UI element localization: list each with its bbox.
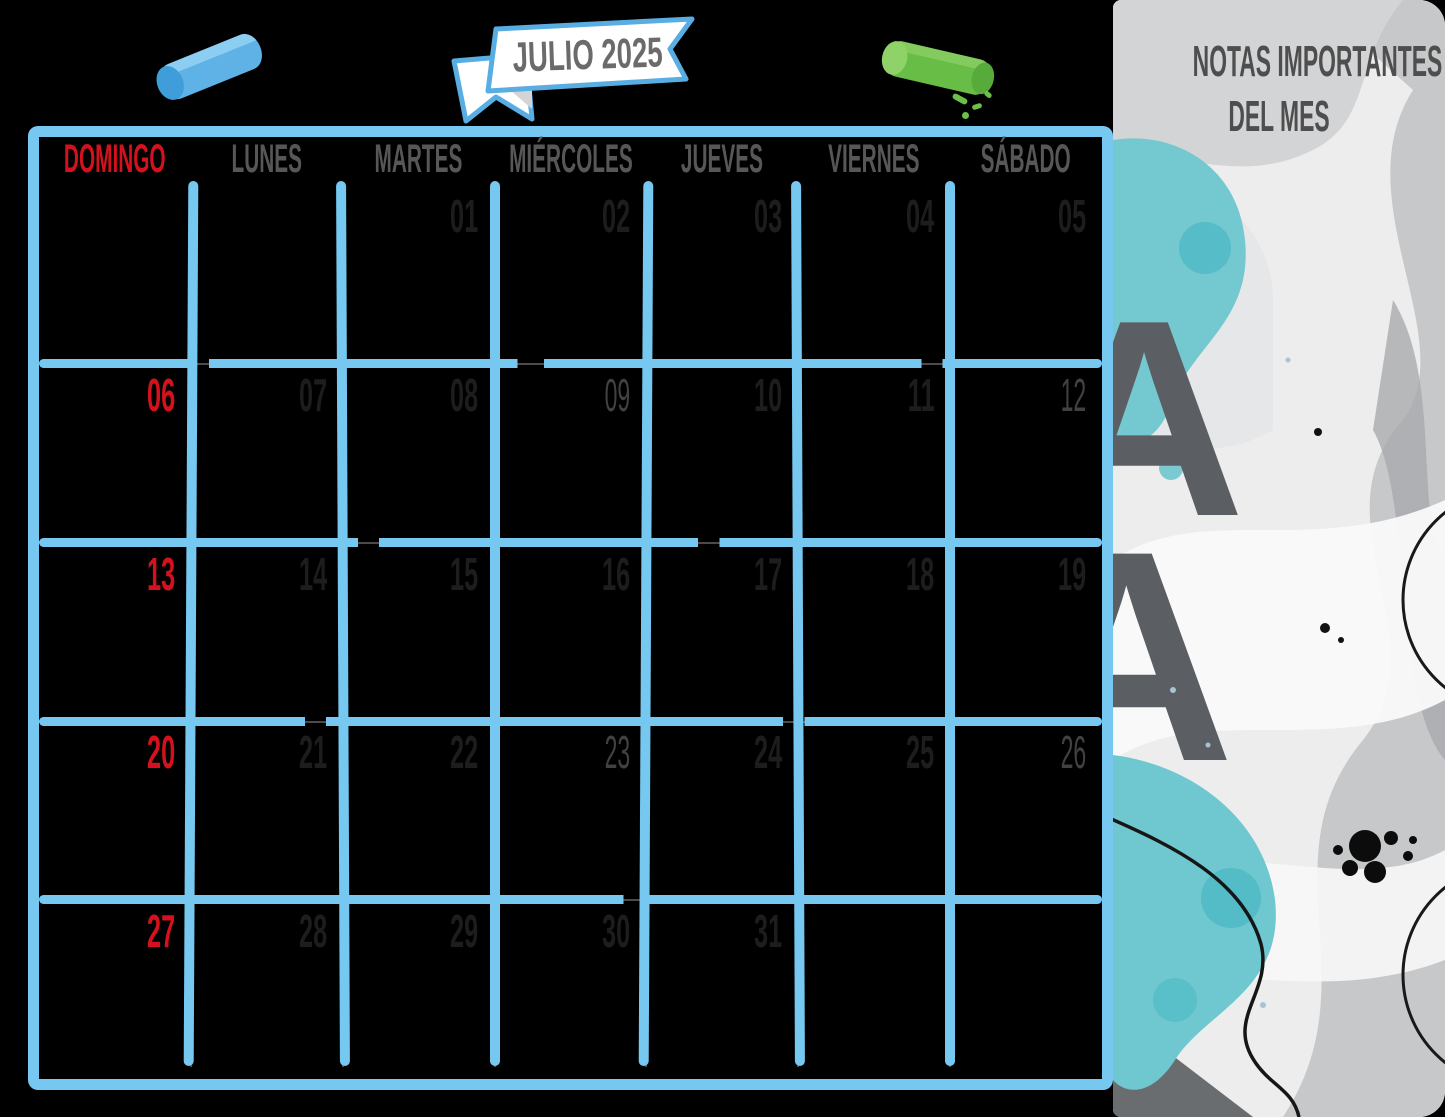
- day-cell: 20: [39, 721, 191, 897]
- day-cell: 07: [191, 364, 343, 540]
- day-cell: 02: [495, 185, 647, 361]
- weekday-jueves: JUEVES: [646, 133, 798, 185]
- notes-title-line1: NOTAS IMPORTANTES: [1193, 34, 1366, 89]
- day-cell: 26: [950, 721, 1102, 897]
- day-cell: 21: [191, 721, 343, 897]
- day-cell: 12: [950, 364, 1102, 540]
- day-cell: 29: [343, 900, 495, 1076]
- day-cell: 13: [39, 543, 191, 719]
- notes-title-line2: DEL MES: [1193, 89, 1366, 144]
- day-cell: 24: [646, 721, 798, 897]
- chalk-crumb: [952, 93, 969, 106]
- day-cell: 04: [798, 185, 950, 361]
- day-cell: 17: [646, 543, 798, 719]
- day-cell: 22: [343, 721, 495, 897]
- day-cell: 05: [950, 185, 1102, 361]
- week-row-3: 13 14 15 16 17 18 19: [39, 543, 1102, 719]
- day-cell: 30: [495, 900, 647, 1076]
- day-cell: 16: [495, 543, 647, 719]
- week-row-5: 27 28 29 30 31: [39, 900, 1102, 1076]
- notes-title: NOTAS IMPORTANTES DEL MES: [1113, 34, 1445, 144]
- week-row-1: 01 02 03 04 05: [39, 185, 1102, 361]
- day-cell: 11: [798, 364, 950, 540]
- blue-chalk-icon: [155, 29, 267, 103]
- day-cell: 27: [39, 900, 191, 1076]
- day-cell: 19: [950, 543, 1102, 719]
- day-cell: 23: [495, 721, 647, 897]
- watercolor-art: A A: [1113, 0, 1445, 1117]
- weekday-domingo: DOMINGO: [39, 133, 191, 185]
- chalk-crumb: [962, 112, 969, 119]
- weekday-sabado: SÁBADO: [950, 133, 1102, 185]
- day-cell: 28: [191, 900, 343, 1076]
- day-cell: 10: [646, 364, 798, 540]
- day-cell: 09: [495, 364, 647, 540]
- weekday-viernes: VIERNES: [798, 133, 950, 185]
- day-cell: 15: [343, 543, 495, 719]
- calendar-grid: DOMINGO LUNES MARTES MIÉRCOLES JUEVES VI…: [28, 126, 1113, 1090]
- chalk-crumb: [971, 103, 982, 111]
- weekday-lunes: LUNES: [191, 133, 343, 185]
- day-cell: [798, 900, 950, 1076]
- day-cell: 06: [39, 364, 191, 540]
- weekday-martes: MARTES: [343, 133, 495, 185]
- day-cell: 03: [646, 185, 798, 361]
- day-cell: [191, 185, 343, 361]
- weekday-header-row: DOMINGO LUNES MARTES MIÉRCOLES JUEVES VI…: [39, 133, 1102, 185]
- weekday-miercoles: MIÉRCOLES: [495, 133, 647, 185]
- day-cell: 25: [798, 721, 950, 897]
- green-chalk-icon: [881, 38, 994, 97]
- month-title: JULIO 2025: [512, 28, 664, 80]
- week-row-2: 06 07 08 09 10 11 12: [39, 364, 1102, 540]
- day-cell: 14: [191, 543, 343, 719]
- day-cell: [950, 900, 1102, 1076]
- notes-panel: A A: [1113, 0, 1445, 1117]
- day-cell: 31: [646, 900, 798, 1076]
- month-banner: JULIO 2025: [440, 12, 708, 126]
- day-cell: 01: [343, 185, 495, 361]
- day-cell: 08: [343, 364, 495, 540]
- week-row-4: 20 21 22 23 24 25 26: [39, 721, 1102, 897]
- calendar-page: JULIO 2025 DOMINGO LUNES MARTES MIÉRCOLE…: [0, 0, 1445, 1117]
- day-cell: [39, 185, 191, 361]
- chalk-crumb: [983, 90, 992, 99]
- day-cell: 18: [798, 543, 950, 719]
